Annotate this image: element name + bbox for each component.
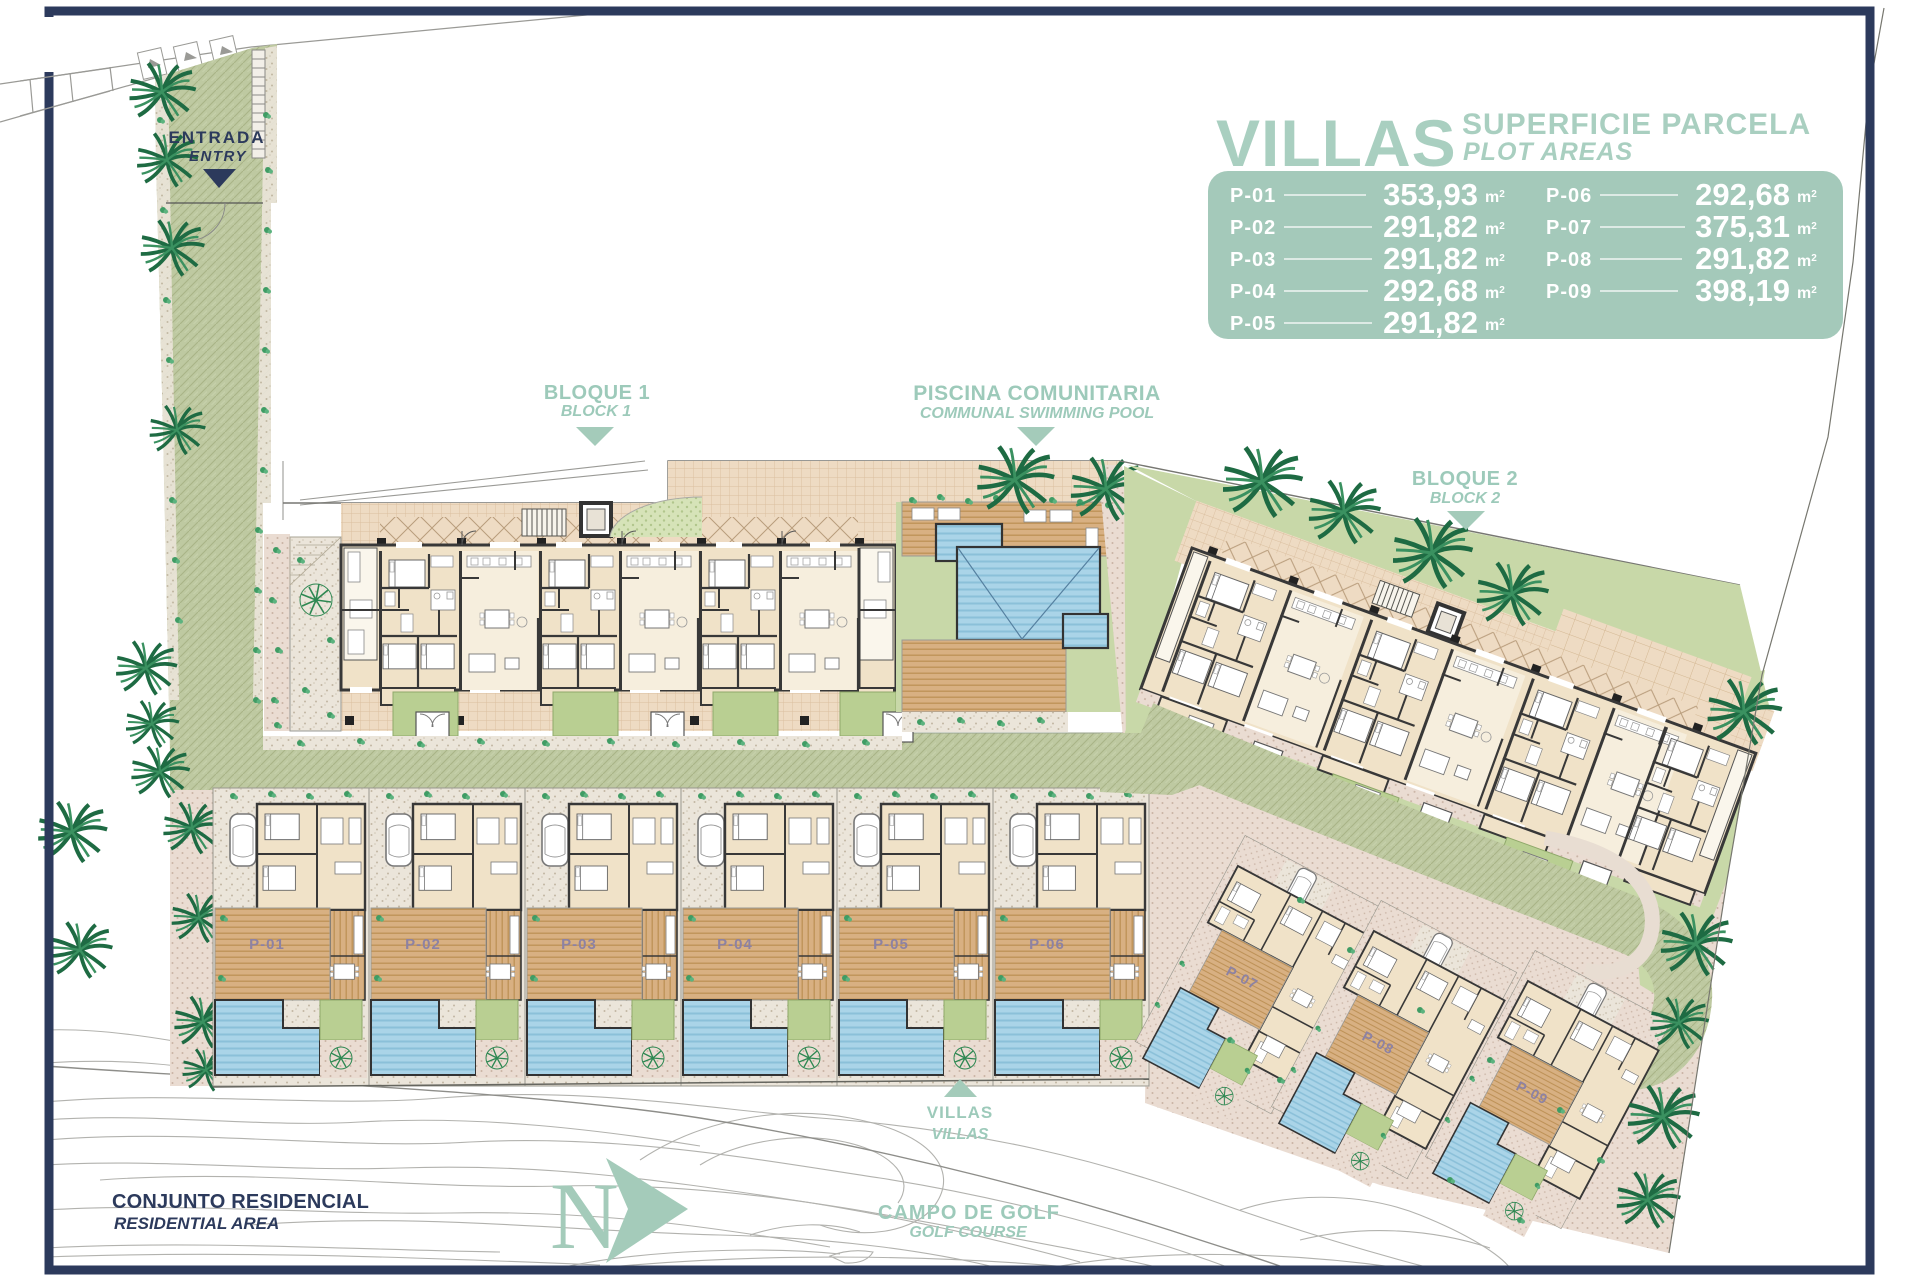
svg-text:VILLAS: VILLAS (927, 1103, 993, 1122)
svg-text:P-05: P-05 (873, 936, 909, 953)
svg-text:ENTRY: ENTRY (189, 148, 248, 165)
svg-text:292,68: 292,68 (1695, 177, 1790, 212)
svg-text:P-03: P-03 (561, 936, 597, 953)
svg-text:BLOCK 1: BLOCK 1 (561, 403, 631, 420)
svg-text:RESIDENTIAL AREA: RESIDENTIAL AREA (114, 1214, 279, 1233)
svg-text:BLOQUE 2: BLOQUE 2 (1412, 468, 1518, 490)
svg-text:ENTRADA: ENTRADA (168, 128, 265, 147)
svg-text:VILLAS: VILLAS (932, 1126, 989, 1143)
svg-text:P-08: P-08 (1546, 249, 1592, 271)
svg-text:VILLAS: VILLAS (1216, 106, 1457, 180)
svg-text:GOLF COURSE: GOLF COURSE (909, 1224, 1028, 1241)
svg-text:P-05: P-05 (1230, 313, 1276, 335)
svg-text:P-01: P-01 (249, 936, 285, 953)
svg-text:PLOT AREAS: PLOT AREAS (1463, 138, 1633, 166)
svg-text:BLOCK 2: BLOCK 2 (1430, 490, 1500, 507)
svg-text:375,31: 375,31 (1695, 209, 1790, 244)
svg-text:P-07: P-07 (1546, 217, 1592, 239)
svg-text:P-06: P-06 (1029, 936, 1065, 953)
svg-text:291,82: 291,82 (1383, 241, 1478, 276)
svg-text:PISCINA COMUNITARIA: PISCINA COMUNITARIA (913, 382, 1161, 405)
svg-text:N: N (550, 1163, 619, 1269)
svg-text:398,19: 398,19 (1695, 273, 1790, 308)
svg-text:CAMPO DE GOLF: CAMPO DE GOLF (878, 1202, 1060, 1224)
svg-text:P-02: P-02 (405, 936, 441, 953)
svg-text:P-01: P-01 (1230, 185, 1276, 207)
svg-text:291,82: 291,82 (1383, 209, 1478, 244)
svg-text:292,68: 292,68 (1383, 273, 1478, 308)
svg-text:SUPERFICIE PARCELA: SUPERFICIE PARCELA (1462, 108, 1811, 141)
svg-text:P-06: P-06 (1546, 185, 1592, 207)
svg-text:291,82: 291,82 (1695, 241, 1790, 276)
svg-text:P-04: P-04 (1230, 281, 1276, 303)
svg-text:P-03: P-03 (1230, 249, 1276, 271)
svg-text:P-02: P-02 (1230, 217, 1276, 239)
svg-text:P-09: P-09 (1546, 281, 1592, 303)
svg-text:BLOQUE 1: BLOQUE 1 (544, 382, 650, 404)
svg-text:COMMUNAL SWIMMING POOL: COMMUNAL SWIMMING POOL (920, 405, 1154, 422)
svg-text:291,82: 291,82 (1383, 305, 1478, 340)
svg-text:CONJUNTO RESIDENCIAL: CONJUNTO RESIDENCIAL (112, 1191, 369, 1213)
svg-text:P-04: P-04 (717, 936, 753, 953)
svg-text:353,93: 353,93 (1383, 177, 1478, 212)
